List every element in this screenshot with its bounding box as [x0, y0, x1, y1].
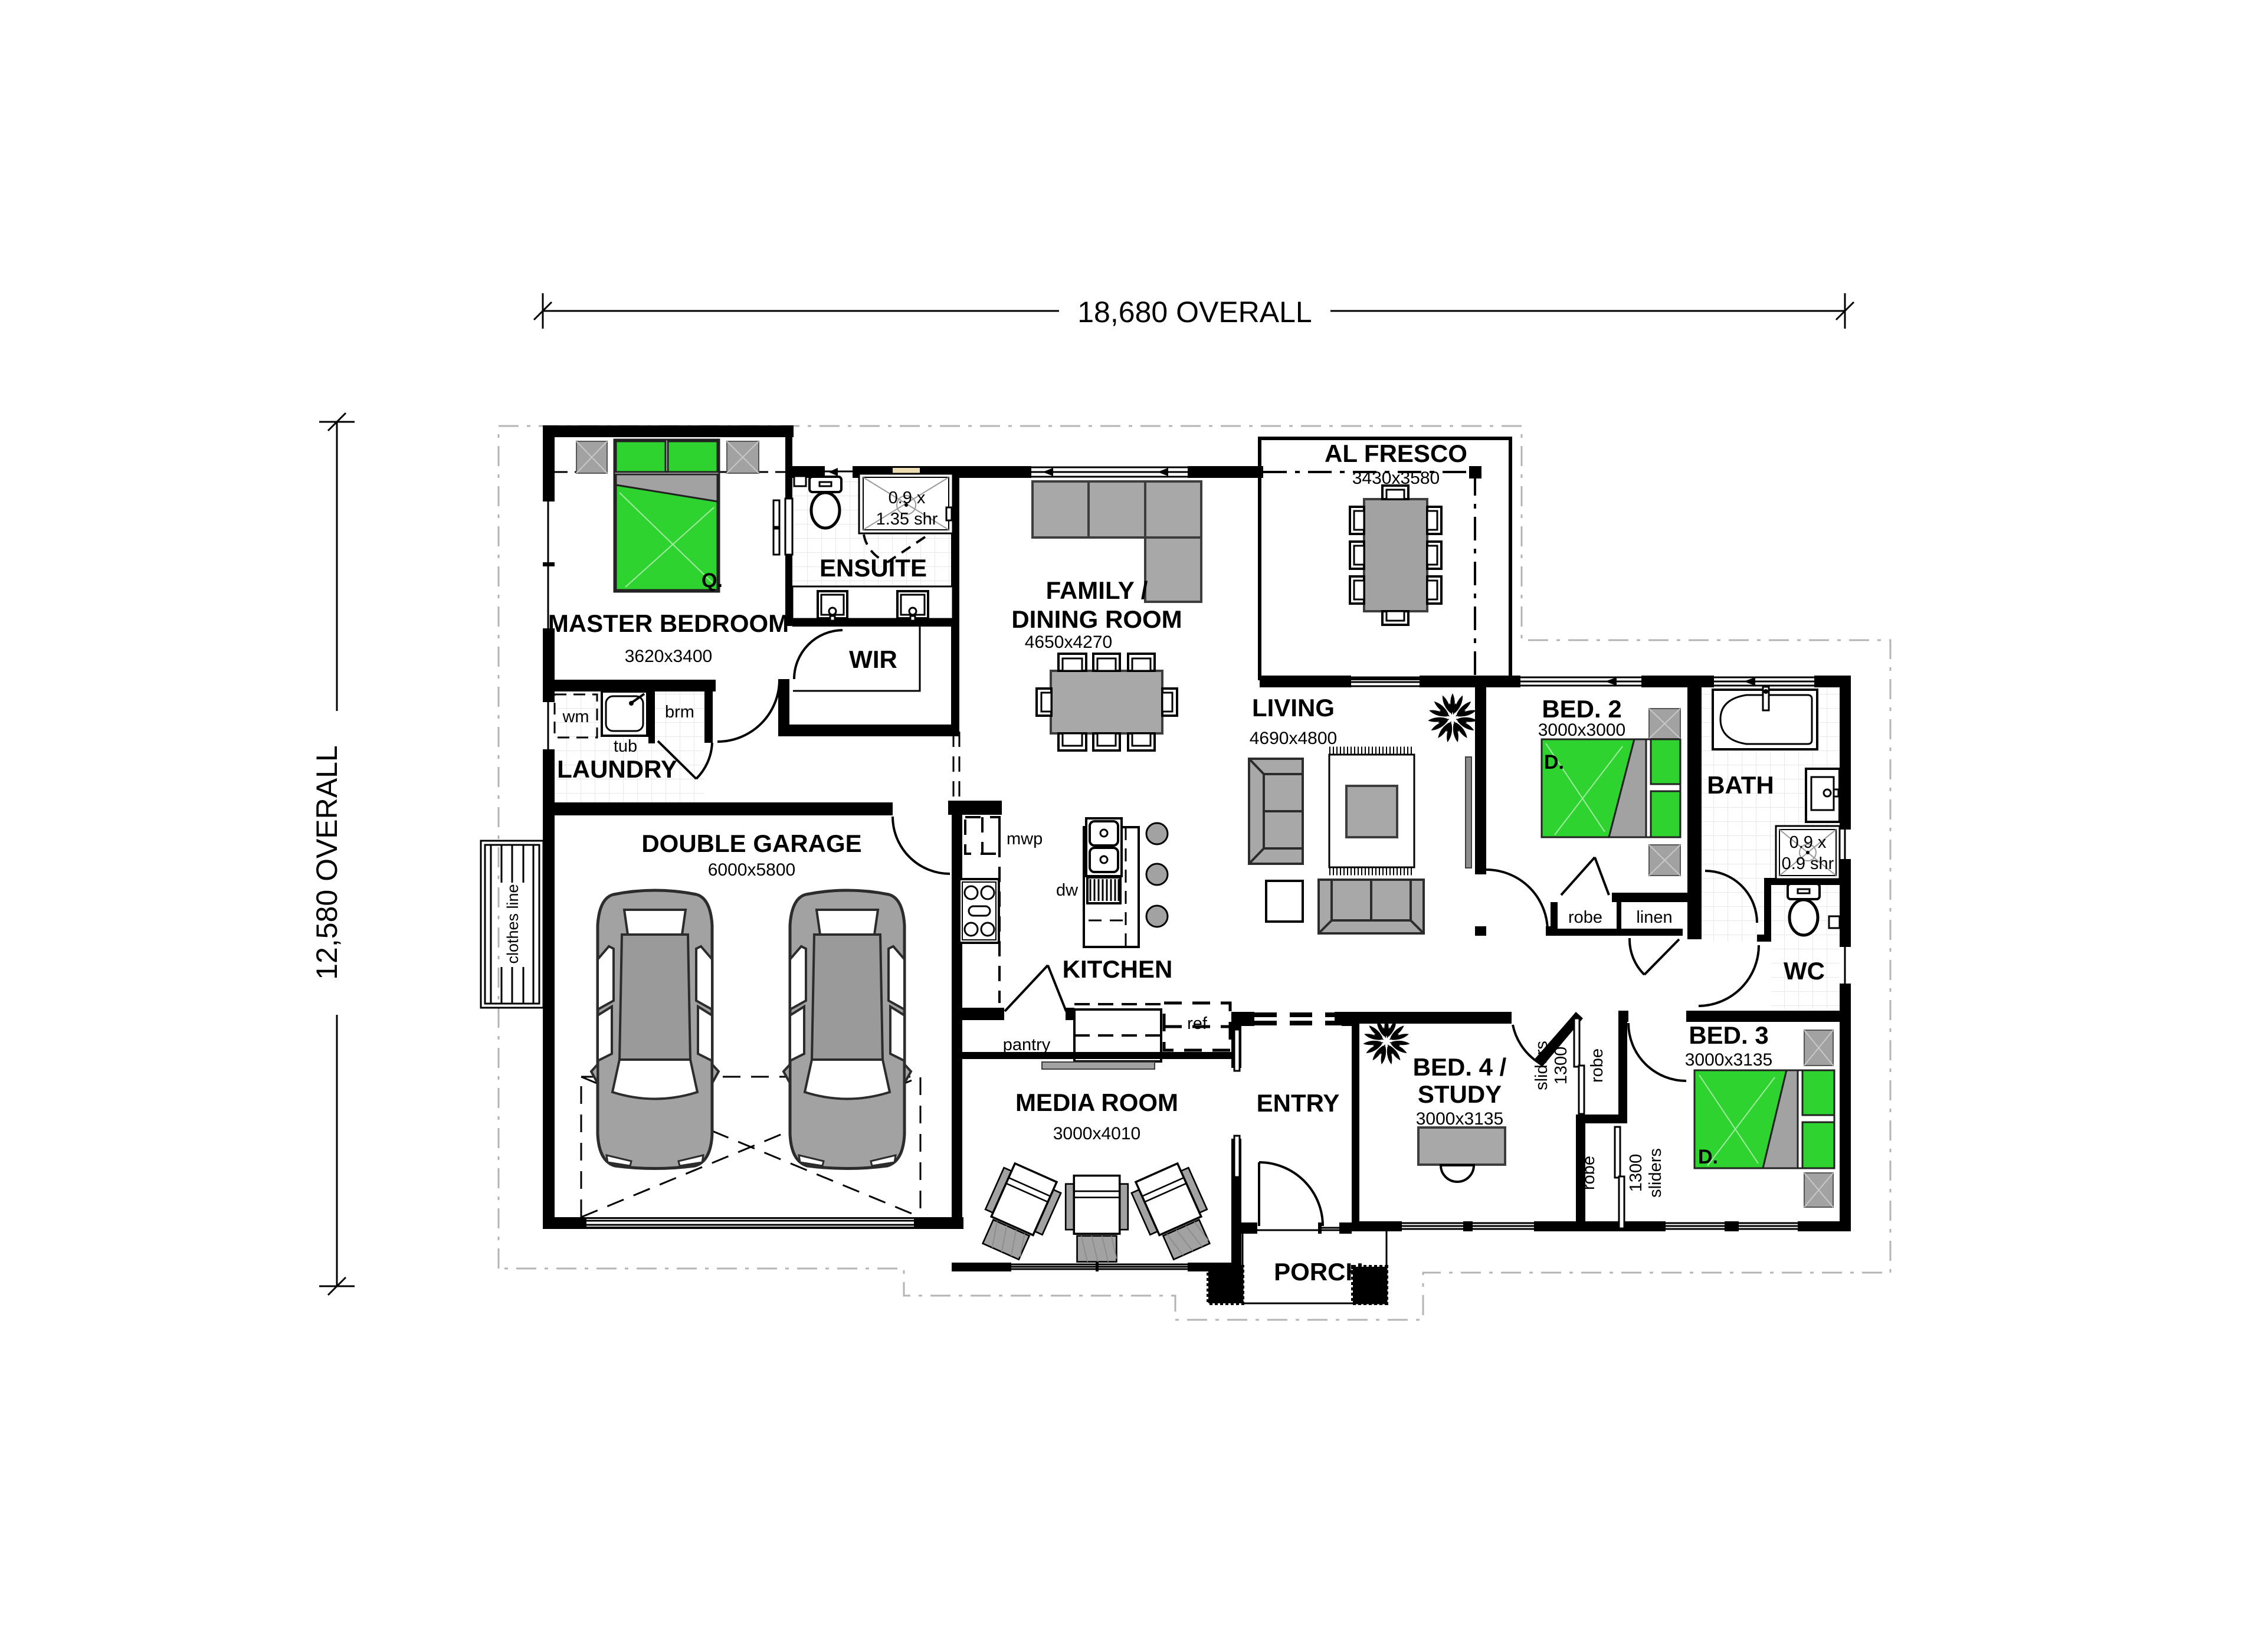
svg-text:Q.: Q.	[702, 569, 723, 592]
svg-text:wm: wm	[562, 707, 589, 726]
svg-text:0.9 x: 0.9 x	[1789, 833, 1827, 852]
svg-text:FAMILY /: FAMILY /	[1046, 576, 1148, 604]
svg-text:ref: ref	[1187, 1014, 1208, 1033]
svg-text:dw: dw	[1056, 881, 1079, 900]
svg-text:1300: 1300	[1552, 1047, 1571, 1085]
svg-text:3000x3135: 3000x3135	[1685, 1050, 1772, 1070]
svg-text:12,580 OVERALL: 12,580 OVERALL	[310, 745, 343, 980]
svg-text:sliders: sliders	[1532, 1041, 1551, 1090]
svg-text:KITCHEN: KITCHEN	[1063, 955, 1173, 983]
svg-text:0.9 x: 0.9 x	[889, 489, 926, 507]
svg-text:DOUBLE GARAGE: DOUBLE GARAGE	[641, 830, 861, 857]
svg-text:BED. 3: BED. 3	[1689, 1021, 1768, 1049]
svg-text:LAUNDRY: LAUNDRY	[557, 755, 677, 783]
svg-text:robe: robe	[1588, 1048, 1607, 1083]
svg-text:4650x4270: 4650x4270	[1025, 632, 1112, 652]
svg-text:3430x3580: 3430x3580	[1352, 468, 1440, 488]
svg-text:1.35 shr: 1.35 shr	[876, 510, 938, 529]
svg-text:3620x3400: 3620x3400	[625, 647, 712, 666]
svg-text:robe: robe	[1579, 1156, 1598, 1190]
svg-text:MEDIA ROOM: MEDIA ROOM	[1015, 1089, 1178, 1116]
svg-text:linen: linen	[1636, 908, 1672, 927]
svg-text:6000x5800: 6000x5800	[708, 860, 795, 880]
svg-text:3000x3135: 3000x3135	[1416, 1109, 1503, 1129]
svg-text:mwp: mwp	[1007, 830, 1043, 848]
svg-text:BATH: BATH	[1707, 771, 1774, 799]
svg-text:D.: D.	[1698, 1146, 1718, 1168]
svg-text:robe: robe	[1568, 908, 1602, 927]
svg-text:WIR: WIR	[849, 645, 897, 673]
svg-text:0.9 shr: 0.9 shr	[1782, 854, 1834, 873]
svg-text:BED. 2: BED. 2	[1542, 695, 1621, 723]
svg-text:tub: tub	[614, 737, 637, 756]
svg-text:1300: 1300	[1627, 1154, 1646, 1192]
svg-text:ENTRY: ENTRY	[1257, 1089, 1340, 1117]
svg-text:MASTER BEDROOM: MASTER BEDROOM	[548, 609, 789, 637]
svg-text:brm: brm	[665, 703, 694, 722]
svg-text:18,680 OVERALL: 18,680 OVERALL	[1077, 296, 1312, 329]
svg-text:3000x4010: 3000x4010	[1053, 1124, 1140, 1143]
svg-text:STUDY: STUDY	[1418, 1080, 1502, 1108]
svg-text:ENSUITE: ENSUITE	[820, 554, 927, 582]
svg-text:BED. 4 /: BED. 4 /	[1413, 1053, 1507, 1081]
svg-text:DINING ROOM: DINING ROOM	[1011, 605, 1182, 633]
svg-text:clothes line: clothes line	[504, 884, 522, 963]
svg-text:4690x4800: 4690x4800	[1250, 729, 1337, 748]
svg-text:pantry: pantry	[1003, 1035, 1051, 1054]
svg-text:D.: D.	[1544, 751, 1564, 773]
svg-text:LIVING: LIVING	[1252, 694, 1335, 722]
svg-text:WC: WC	[1784, 957, 1825, 985]
svg-text:AL FRESCO: AL FRESCO	[1325, 440, 1467, 467]
svg-text:sliders: sliders	[1646, 1148, 1665, 1198]
svg-text:PORCH: PORCH	[1274, 1258, 1363, 1286]
svg-text:3000x3000: 3000x3000	[1538, 720, 1625, 740]
